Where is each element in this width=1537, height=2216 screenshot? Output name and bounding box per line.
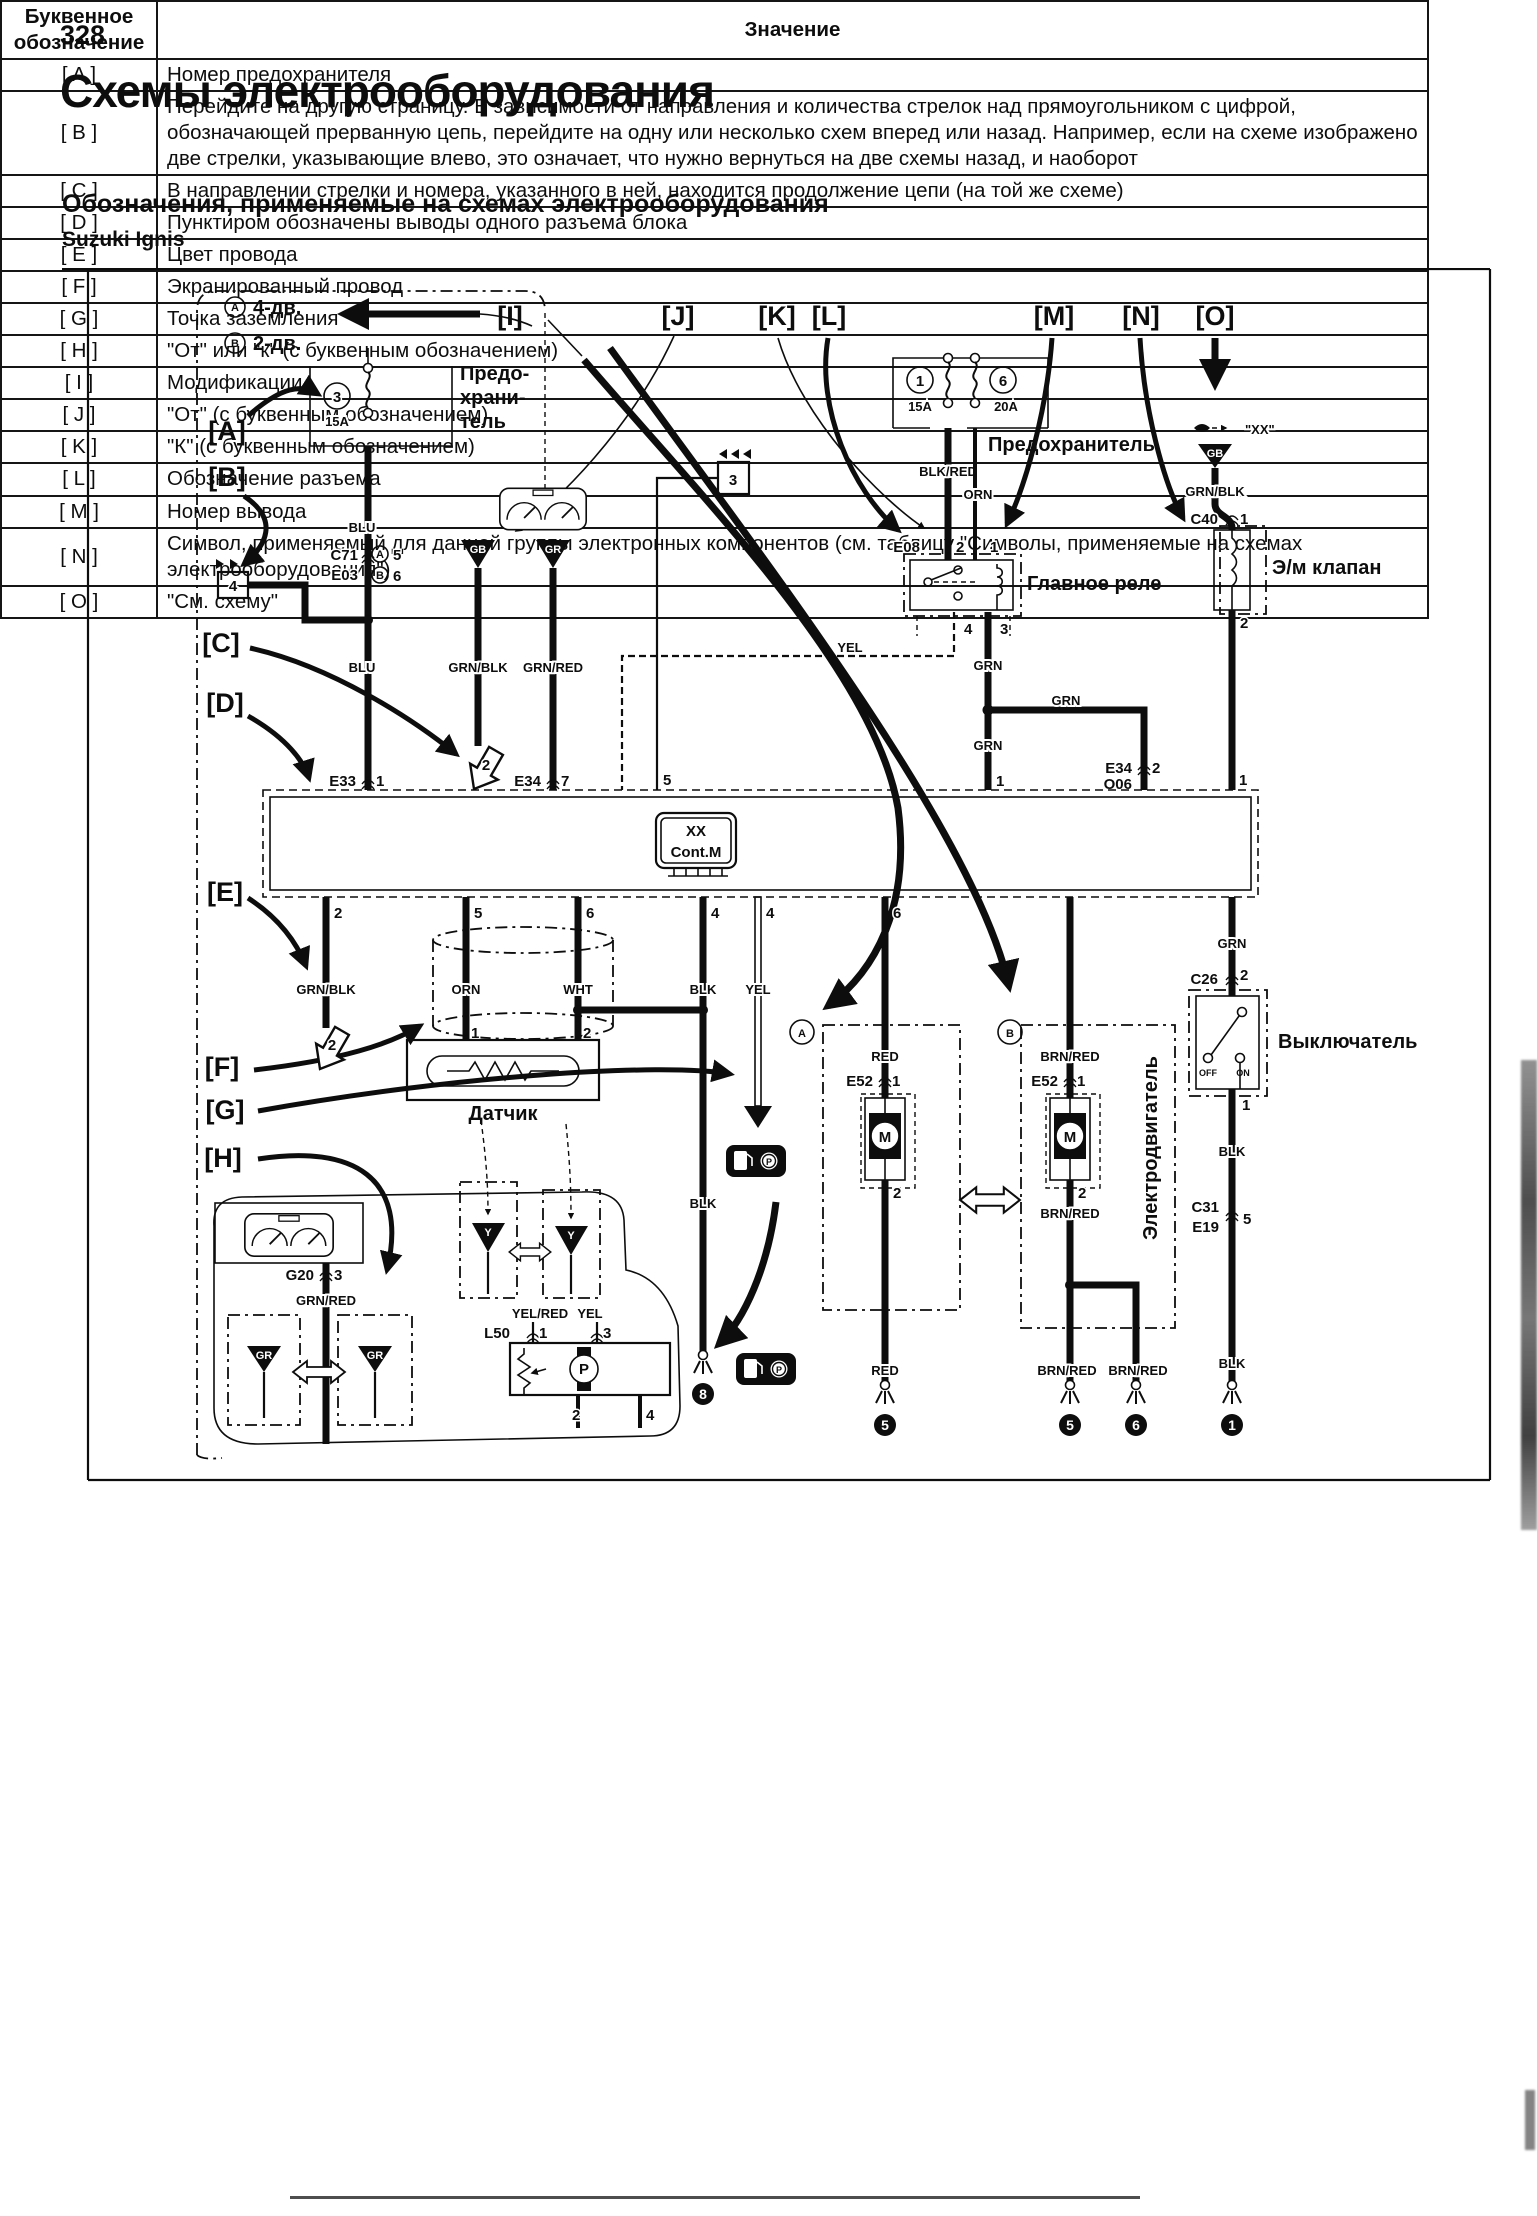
svg-text:E34: E34: [514, 773, 541, 790]
legend-col2-header: Значение: [157, 1, 1428, 59]
wire-label-brnred: BRN/RED: [1040, 1049, 1099, 1064]
diagram-frame: [62, 269, 1490, 1480]
mark-b: [B]: [208, 462, 245, 492]
wire-label-yelred: YEL/RED: [512, 1306, 568, 1321]
svg-text:1: 1: [892, 1073, 900, 1090]
svg-text:B: B: [1006, 1028, 1014, 1040]
mark-h: [H]: [204, 1143, 241, 1173]
svg-text:1: 1: [1242, 1097, 1250, 1114]
ground-icon: [1127, 1381, 1145, 1405]
svg-text:2: 2: [482, 757, 490, 774]
svg-text:GRN: GRN: [1052, 693, 1081, 708]
ground-5: 5: [881, 1417, 889, 1433]
wire-label-yel: YEL: [837, 640, 862, 655]
controller-chip: XX Cont.M: [656, 813, 736, 876]
motor-caption: Электродвигатель: [1140, 1056, 1162, 1240]
svg-text:GRN/BLK: GRN/BLK: [296, 982, 356, 997]
connector-g20: G20: [286, 1267, 314, 1284]
mark-a: [A]: [208, 416, 245, 446]
fuel-pump-badge-icon: [736, 1353, 796, 1385]
svg-text:M: M: [1064, 1129, 1077, 1146]
double-arrow-icon: [509, 1243, 551, 1261]
svg-text:GR: GR: [545, 544, 562, 556]
mod-b-symbol: B: [231, 338, 239, 350]
svg-text:YEL: YEL: [745, 982, 770, 997]
svg-text:15A: 15A: [908, 399, 932, 414]
svg-text:6: 6: [393, 568, 401, 585]
ground-icon: [1061, 1381, 1079, 1405]
svg-text:2: 2: [1078, 1185, 1086, 1202]
section-a: A RED E52 1 M 2 RED 5: [790, 1020, 960, 1436]
svg-text:XX: XX: [686, 823, 706, 840]
svg-text:Y: Y: [484, 1227, 492, 1239]
solenoid-valve-chain: "XX" GB GRN/BLK C40 1 Э/м клапан 2 1: [1185, 422, 1381, 790]
wire-label-grnblk: GRN/BLK: [448, 660, 508, 675]
svg-text:2: 2: [572, 1407, 580, 1424]
svg-text:1: 1: [1239, 772, 1247, 789]
svg-text:GRN/RED: GRN/RED: [296, 1293, 356, 1308]
mark-k: [K]: [758, 301, 795, 331]
fuse-number: 3: [333, 389, 341, 406]
wire-label-grn: GRN: [974, 658, 1003, 673]
ground-icon: [694, 1351, 712, 1375]
legend-header-row: Буквенное обозначение Значение: [1, 1, 1428, 59]
svg-text:BRN/RED: BRN/RED: [1040, 1206, 1099, 1221]
svg-text:20A: 20A: [994, 399, 1018, 414]
svg-text:A: A: [798, 1028, 806, 1040]
mark-f: [F]: [205, 1052, 239, 1082]
fuse-right: 1 15A 6 20A Предохранитель: [893, 354, 1155, 457]
mark-e: [E]: [207, 877, 243, 907]
mark-m: [M]: [1034, 301, 1074, 331]
page-subtitle: Обозначения, применяемые на схемах элект…: [62, 190, 829, 219]
svg-text:B: B: [376, 570, 384, 582]
svg-text:BRN/RED: BRN/RED: [1037, 1363, 1096, 1378]
instrument-cluster-icon: [245, 1214, 333, 1256]
svg-text:3: 3: [334, 1267, 342, 1284]
svg-text:3: 3: [729, 472, 737, 489]
svg-text:ORN: ORN: [452, 982, 481, 997]
svg-text:P: P: [776, 1365, 782, 1375]
scan-artifact: [1525, 2090, 1535, 2150]
svg-text:1: 1: [996, 773, 1004, 790]
fuse-icon: [971, 354, 980, 408]
bottom-left-module: G20 3 GRN/RED GR GR Y Y YEL/RED: [214, 1120, 680, 1444]
fuse-right-caption: Предохранитель: [988, 434, 1155, 456]
ground-8: 8: [699, 1386, 707, 1402]
svg-text:YEL: YEL: [577, 1306, 602, 1321]
ground-6: 6: [1132, 1417, 1140, 1433]
ground-icon: [876, 1381, 894, 1405]
svg-text:BLK: BLK: [1219, 1144, 1246, 1159]
wire-label-grnred: GRN/RED: [523, 660, 583, 675]
wire-label-blk: BLK: [690, 982, 717, 997]
svg-text:5: 5: [663, 772, 671, 789]
shielded-sensor: 1 2 Датчик: [407, 927, 613, 1125]
mark-c: [C]: [202, 628, 239, 658]
see-diagram-icon: [1194, 424, 1226, 432]
page-title: Схемы электрооборудования: [60, 64, 714, 118]
svg-text:1: 1: [376, 773, 384, 790]
svg-text:GB: GB: [470, 544, 487, 556]
fuel-pump-badge-icon: [726, 1145, 786, 1177]
connector-l50: L50: [484, 1325, 510, 1342]
svg-text:2: 2: [1240, 967, 1248, 984]
legend-marks: [I] [J] [K] [L] [M] [N] [O] [A] [B] [C] …: [202, 301, 1234, 1173]
svg-text:GB: GB: [1207, 448, 1224, 460]
connector-e03: E03: [331, 567, 358, 584]
wiring-diagram: A 4-дв. B 2-дв. [I] [J] [K] [L] [M] [N] …: [62, 268, 1492, 1483]
ground-5b: 5: [1066, 1417, 1074, 1433]
forward-arrows-icon: [719, 449, 751, 459]
svg-text:5: 5: [474, 905, 482, 922]
svg-text:тель: тель: [460, 411, 506, 433]
fuse-icon: [364, 364, 373, 418]
scan-artifact: [1521, 1060, 1537, 1530]
svg-text:E52: E52: [1031, 1073, 1058, 1090]
wire-label-orn: ORN: [964, 487, 993, 502]
svg-text:5: 5: [1243, 1211, 1251, 1228]
svg-text:7: 7: [561, 773, 569, 790]
svg-text:3: 3: [603, 1325, 611, 1342]
resistor-icon: [518, 1348, 530, 1394]
svg-text:GRN/BLK: GRN/BLK: [1185, 484, 1245, 499]
svg-text:2: 2: [334, 905, 342, 922]
svg-text:P: P: [579, 1361, 589, 1378]
switch-chain: GRN C26 2 OFF ON Выключатель 1 BLK C31 E…: [1189, 897, 1417, 1436]
controller-output-wires: GRN/BLK 2 ORN WHT BLK BLK YEL: [296, 897, 1070, 1353]
mark-d: [D]: [206, 688, 243, 718]
wire-label-blkred: BLK/RED: [919, 464, 977, 479]
relay-caption: Главное реле: [1027, 573, 1161, 595]
model-name: Suzuki Ignis: [62, 228, 185, 252]
svg-text:GRN: GRN: [1218, 936, 1247, 951]
ground-arrow-icon: [744, 1106, 772, 1128]
see-ref-label: "XX": [1245, 422, 1275, 437]
valve-caption: Э/м клапан: [1272, 557, 1382, 579]
jump-box-4: 4: [229, 578, 238, 595]
instrument-cluster-icon: [500, 488, 586, 529]
svg-text:BRN/RED: BRN/RED: [1108, 1363, 1167, 1378]
svg-text:GR: GR: [367, 1350, 384, 1362]
svg-text:OFF: OFF: [1199, 1068, 1217, 1078]
svg-text:2: 2: [1240, 615, 1248, 632]
svg-text:BLK: BLK: [1219, 1356, 1246, 1371]
connector-c26: C26: [1190, 971, 1218, 988]
mark-i: [I]: [497, 301, 522, 331]
ground-8-group: 8 P P: [692, 1145, 796, 1405]
fuse-amp: 15A: [325, 414, 349, 429]
sensor-caption: Датчик: [468, 1103, 538, 1125]
mark-l: [L]: [812, 301, 846, 331]
svg-text:BLU: BLU: [349, 660, 376, 675]
svg-text:E52: E52: [846, 1073, 873, 1090]
relay-coil-icon: [997, 564, 1002, 610]
double-arrow-icon: [960, 1187, 1020, 1212]
connector-c71: C71: [330, 547, 358, 564]
svg-text:E19: E19: [1192, 1219, 1219, 1236]
svg-text:E34: E34: [1105, 760, 1132, 777]
mark-j: [J]: [662, 301, 695, 331]
main-relay: BLK/RED ORN E08 2 1 Главное реле 4 3 YEL…: [622, 428, 1161, 793]
svg-text:6: 6: [999, 373, 1007, 390]
switch-caption: Выключатель: [1278, 1031, 1417, 1053]
svg-text:Y: Y: [567, 1230, 575, 1242]
svg-text:GRN: GRN: [974, 738, 1003, 753]
mod-a-symbol: A: [231, 302, 239, 314]
svg-text:4: 4: [964, 621, 973, 638]
connector-c40: C40: [1190, 511, 1218, 528]
svg-text:4: 4: [711, 905, 720, 922]
svg-text:5: 5: [393, 547, 401, 564]
svg-text:4: 4: [766, 905, 775, 922]
wire-label-wht: WHT: [563, 982, 593, 997]
svg-text:RED: RED: [871, 1363, 898, 1378]
table-row: [ E ]Цвет провода: [1, 239, 1428, 271]
connector-e33: E33: [329, 773, 356, 790]
manual-page: 328 Схемы электрооборудования Обозначени…: [0, 0, 1537, 2216]
svg-text:6: 6: [893, 905, 901, 922]
svg-text:ON: ON: [1236, 1068, 1250, 1078]
svg-text:GR: GR: [256, 1350, 273, 1362]
ground-1: 1: [1228, 1417, 1236, 1433]
modification-legend: A 4-дв. B 2-дв.: [225, 297, 532, 355]
mod-b-label: 2-дв.: [253, 333, 301, 355]
back-arrows-icon: [216, 559, 238, 569]
svg-text:1: 1: [539, 1325, 547, 1342]
mod-a-label: 4-дв.: [253, 297, 301, 319]
fuse-icon: [944, 354, 953, 408]
svg-text:2: 2: [1152, 760, 1160, 777]
svg-text:6: 6: [586, 905, 594, 922]
svg-text:Cont.M: Cont.M: [671, 844, 722, 861]
gb-gr-circuits: GB GRN/BLK 2 GR GRN/RED E34 7: [448, 488, 586, 797]
page-number: 328: [60, 20, 105, 51]
svg-text:храни-: храни-: [460, 387, 526, 409]
svg-text:2: 2: [328, 1037, 336, 1054]
svg-text:C31: C31: [1191, 1199, 1219, 1216]
svg-text:1: 1: [916, 373, 924, 390]
svg-text:M: M: [879, 1129, 892, 1146]
wire-label-red: RED: [871, 1049, 898, 1064]
svg-text:3: 3: [1000, 621, 1008, 638]
svg-text:1: 1: [1077, 1073, 1085, 1090]
svg-text:4: 4: [646, 1407, 655, 1424]
svg-text:BLK: BLK: [690, 1196, 717, 1211]
valve-coil-icon: [1232, 530, 1237, 610]
svg-text:A: A: [376, 549, 384, 561]
legend-value: Цвет провода: [157, 239, 1428, 271]
fuse-left: 3 15A Предо- храни- тель: [310, 348, 529, 446]
svg-text:2: 2: [893, 1185, 901, 1202]
scan-artifact: [290, 2196, 1140, 2199]
ground-icon: [1223, 1381, 1241, 1405]
wire-label-blu: BLU: [349, 520, 376, 535]
mark-o: [O]: [1196, 301, 1235, 331]
mark-n: [N]: [1122, 301, 1159, 331]
mark-g: [G]: [206, 1095, 245, 1125]
fuse-caption: Предо-: [460, 363, 529, 385]
svg-text:P: P: [766, 1157, 772, 1167]
